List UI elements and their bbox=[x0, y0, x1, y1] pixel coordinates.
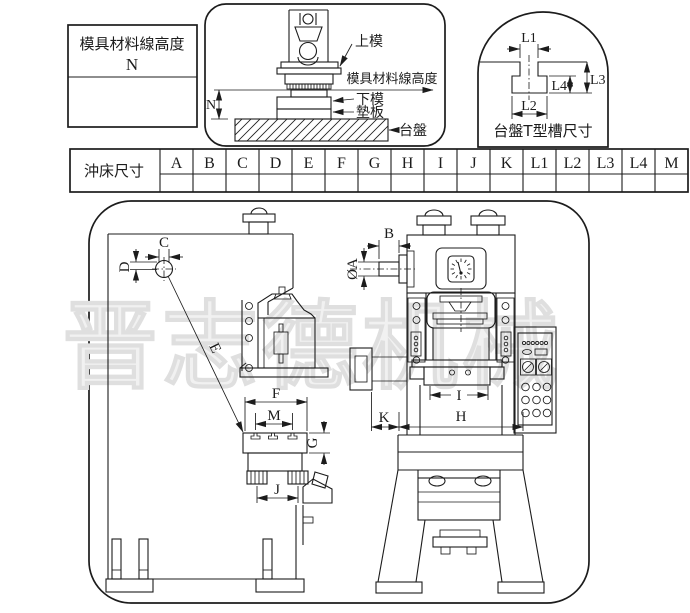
table-col-header-b: B bbox=[204, 155, 215, 172]
side-bolster bbox=[243, 433, 308, 484]
connecting-rod-drawing bbox=[277, 10, 341, 74]
size-table-headers: A B C D E F G H I J K L1 L2 L3 L4 M bbox=[171, 155, 679, 172]
l4-dimension: L4 bbox=[549, 76, 576, 94]
backing-plate-label: 墊板 bbox=[356, 105, 384, 121]
a-dimension: ØA bbox=[345, 248, 380, 290]
tslot-caption: 台盤T型槽尺寸 bbox=[493, 122, 592, 140]
table-col-header-e: E bbox=[304, 155, 314, 172]
legend-title: 模具材料線高度 bbox=[79, 35, 184, 53]
table-col-header-g: G bbox=[369, 155, 381, 172]
side-base bbox=[106, 539, 304, 592]
table-col-header-k: K bbox=[501, 155, 513, 172]
bolster-label: 台盤 bbox=[399, 123, 427, 139]
dim-label-l3: L3 bbox=[590, 73, 606, 88]
drawing-sheet: 模具材料線高度 N bbox=[0, 0, 690, 613]
size-table: 沖床尺寸 A B C D E F G H I J K L1 L2 L3 L4 M bbox=[70, 149, 688, 192]
dim-label-h: H bbox=[456, 409, 467, 425]
dim-label-c: C bbox=[159, 235, 169, 251]
upper-die-leader bbox=[340, 44, 352, 66]
front-crown bbox=[407, 210, 515, 293]
l2-dimension: L2 bbox=[512, 96, 547, 119]
l1-dimension: L1 bbox=[507, 31, 551, 58]
dim-label-l1: L1 bbox=[521, 31, 537, 46]
tslot-profile bbox=[480, 62, 587, 93]
j-dimension: J bbox=[257, 482, 298, 503]
h-dimension: H bbox=[399, 409, 523, 431]
dim-label-k: K bbox=[379, 410, 390, 426]
table-col-header-f: F bbox=[337, 155, 346, 172]
dim-label-f: F bbox=[272, 386, 280, 402]
dim-label-m: M bbox=[267, 408, 280, 424]
side-cap-dome bbox=[251, 208, 267, 214]
dim-label-g: G bbox=[305, 437, 321, 448]
side-switch-bracket bbox=[296, 472, 332, 579]
material-line-label: 模具材料線高度 bbox=[346, 71, 437, 87]
upper-die-label: 上模 bbox=[355, 34, 383, 50]
table-col-header-d: D bbox=[270, 155, 282, 172]
watermark: 晋志德机械 bbox=[62, 291, 562, 403]
front-base bbox=[376, 435, 544, 593]
size-table-grid bbox=[193, 149, 655, 192]
tslot-panel: L1 L2 L3 L4 台盤T型槽尺寸 bbox=[478, 12, 608, 147]
b-dimension: B bbox=[367, 226, 411, 259]
pressure-gauge bbox=[436, 248, 486, 289]
dim-label-i: I bbox=[457, 388, 462, 404]
table-col-header-j: J bbox=[470, 155, 476, 172]
die-assembly-panel: 模具材料線高度 N bbox=[205, 4, 445, 146]
g-dimension: G bbox=[305, 421, 330, 465]
press-specification-drawing: 模具材料線高度 N bbox=[0, 0, 690, 613]
table-col-header-h: H bbox=[402, 155, 414, 172]
table-col-header-c: C bbox=[237, 155, 248, 172]
legend-symbol: N bbox=[126, 55, 138, 74]
upper-die-drawing bbox=[285, 74, 333, 89]
n-dimension: N bbox=[206, 90, 228, 119]
table-col-header-l1: L1 bbox=[531, 155, 549, 172]
d-dimension: D bbox=[117, 249, 136, 283]
gauge-ticks bbox=[451, 259, 472, 280]
size-table-row-label: 沖床尺寸 bbox=[84, 162, 144, 180]
dim-label-l2: L2 bbox=[521, 99, 537, 114]
dim-label-j: J bbox=[274, 482, 280, 498]
dim-label-d: D bbox=[117, 261, 133, 272]
table-col-header-i: I bbox=[438, 155, 443, 172]
dim-label-n: N bbox=[206, 98, 216, 113]
lower-die-drawing bbox=[277, 90, 331, 119]
side-frame bbox=[108, 234, 293, 579]
table-col-header-l4: L4 bbox=[630, 155, 648, 172]
dim-label-b: B bbox=[384, 226, 394, 242]
base-pedestal bbox=[433, 530, 487, 554]
table-col-header-l3: L3 bbox=[597, 155, 615, 172]
dim-label-diameter-a: ØA bbox=[345, 258, 361, 280]
legend-box: 模具材料線高度 N bbox=[68, 25, 197, 127]
lower-die-leader bbox=[333, 99, 354, 101]
machine-drawing: 晋志德机械 bbox=[62, 201, 589, 603]
table-col-header-l2: L2 bbox=[564, 155, 582, 172]
m-dimension: M bbox=[256, 408, 293, 430]
table-col-header-m: M bbox=[664, 155, 678, 172]
table-col-header-a: A bbox=[171, 155, 183, 172]
dim-label-l4: L4 bbox=[551, 79, 567, 94]
